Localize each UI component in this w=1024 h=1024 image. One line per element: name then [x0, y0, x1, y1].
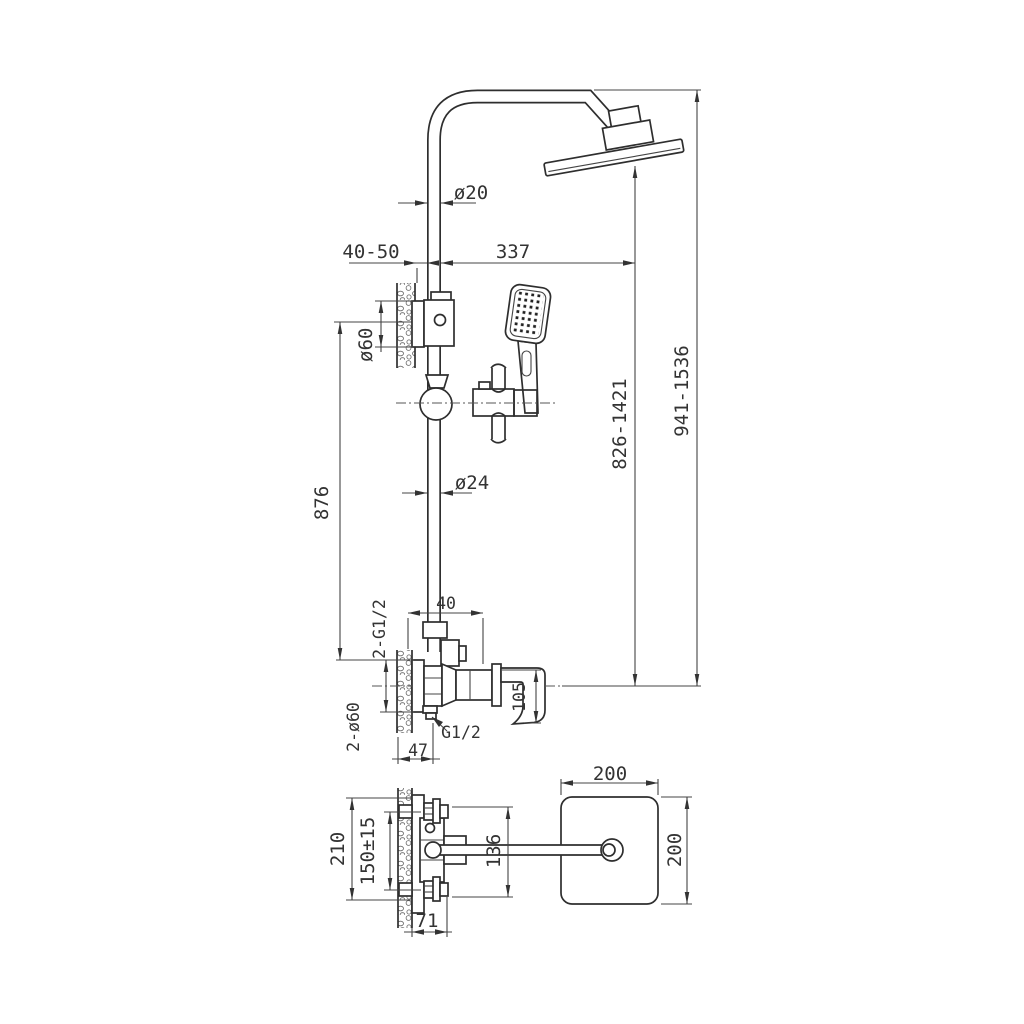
mixer-valve [397, 622, 545, 733]
dim-bracket-escutcheon: ø60 [355, 328, 377, 362]
dim-head-width: 200 [593, 763, 627, 785]
label-valve-escutcheons: 2-ø60 [344, 702, 363, 752]
dim-plate-height: 210 [327, 832, 349, 866]
dim-bracket-height: 876 [311, 486, 333, 520]
rain-shower-head [544, 104, 684, 176]
hand-shower-head [504, 283, 551, 344]
dim-head-depth: 200 [664, 833, 686, 867]
dim-valve-depth: 47 [408, 741, 428, 760]
label-inlet-thread: 2-G1/2 [370, 599, 389, 659]
riser-lock-ring [420, 375, 452, 420]
bracket-screw [435, 315, 446, 326]
technical-drawing-page: ø20 40-50 337 ø60 876 ø24 826-1421 941-1… [0, 0, 1024, 1024]
valve-body [456, 670, 492, 700]
shower-system-drawing: ø20 40-50 337 ø60 876 ø24 826-1421 941-1… [0, 0, 1024, 1024]
valve-escutcheon [412, 660, 424, 712]
dim-inlet-spacing: 150±15 [357, 817, 379, 886]
front-dimensions [336, 90, 701, 764]
dim-valve-wall-offset: 40 [436, 594, 456, 613]
top-view: 210 150±15 136 71 200 200 [327, 763, 692, 937]
top-port [441, 640, 459, 666]
arm-ball-joint [601, 839, 623, 861]
label-outlet-thread: G1/2 [441, 723, 481, 742]
inlet-fitting-bottom [440, 883, 448, 896]
hand-shower-handle [518, 341, 538, 413]
dim-head-offset: 337 [496, 241, 530, 263]
dim-handle-height: 105 [510, 682, 529, 712]
dim-body-height: 136 [483, 834, 505, 868]
top-view-shower-head [425, 797, 658, 904]
riser-coupling [423, 622, 447, 638]
hand-shower-assembly [473, 283, 552, 442]
dim-column-diameter: ø24 [455, 472, 489, 494]
dim-protrusion: 71 [416, 910, 439, 932]
dim-wall-distance: 40-50 [342, 241, 399, 263]
dim-head-to-valve-height: 826-1421 [609, 378, 631, 470]
inlet-fitting-top [440, 805, 448, 818]
dim-total-height: 941-1536 [671, 345, 693, 437]
front-view: ø20 40-50 337 ø60 876 ø24 826-1421 941-1… [311, 90, 701, 764]
dim-riser-diameter: ø20 [454, 182, 488, 204]
bracket-escutcheon [412, 301, 424, 347]
hose-outlet [423, 706, 437, 713]
